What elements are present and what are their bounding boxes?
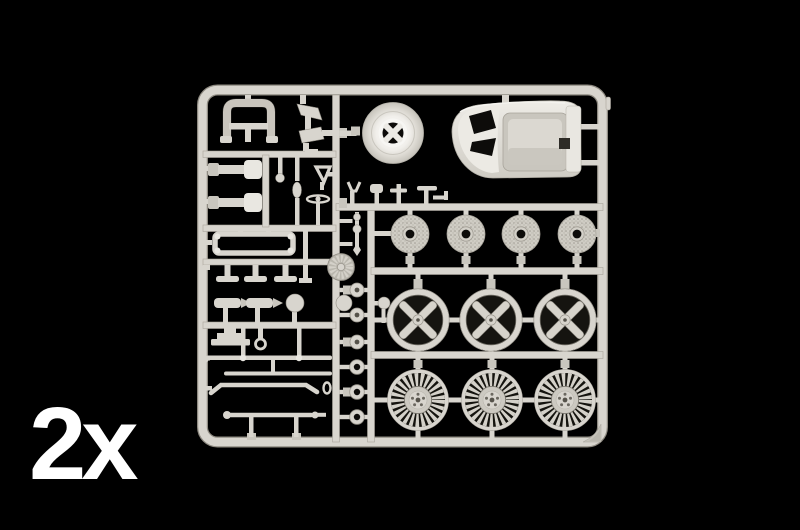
shock-and-ball-parts [214, 294, 390, 323]
photo-stage: 2x [0, 0, 800, 530]
steering-wheel-dish-part [340, 103, 424, 164]
dumbbell-link-parts [340, 212, 362, 256]
shock-absorber-parts [203, 160, 262, 212]
chassis-frame-part [203, 228, 308, 262]
x-spoke-wheel-part [460, 274, 522, 355]
x-spoke-wheel-part [534, 274, 596, 355]
quantity-label: 2x [29, 392, 134, 495]
mount-bracket-parts [211, 327, 266, 349]
brake-disc-parts [374, 210, 600, 269]
frame-notch [606, 97, 611, 110]
brake-disc-part [447, 210, 485, 269]
suspension-link-parts [276, 157, 334, 225]
fan-wheel-parts [374, 358, 601, 439]
air-filter-part [328, 254, 355, 281]
roll-bar-part [220, 95, 278, 143]
t-link-parts [203, 265, 312, 283]
bucket-seat-part [452, 95, 599, 178]
bracket-parts [297, 95, 333, 155]
brake-disc-part [502, 210, 540, 269]
fan-wheel-part [535, 358, 596, 439]
brake-disc-part [391, 210, 429, 269]
x-spoke-wheel-parts [374, 274, 600, 355]
small-lever-parts [348, 182, 448, 204]
x-spoke-wheel-part [387, 274, 449, 355]
fan-wheel-part [388, 358, 449, 439]
fan-wheel-part [462, 358, 523, 439]
brake-disc-part [558, 210, 596, 269]
